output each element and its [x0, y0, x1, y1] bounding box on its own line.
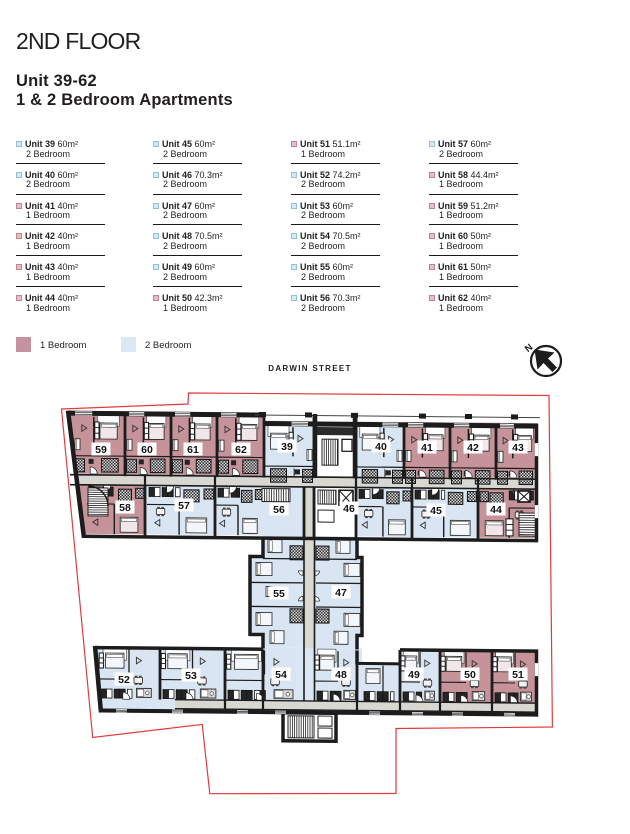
svg-text:54: 54: [275, 669, 287, 681]
svg-text:59: 59: [95, 444, 107, 456]
svg-text:51: 51: [512, 669, 524, 681]
svg-text:57: 57: [178, 500, 190, 512]
svg-text:60: 60: [141, 444, 153, 456]
svg-text:39: 39: [281, 441, 293, 453]
svg-text:49: 49: [408, 669, 420, 681]
svg-text:53: 53: [185, 670, 197, 682]
svg-text:56: 56: [273, 504, 285, 516]
svg-text:44: 44: [490, 504, 502, 516]
svg-text:58: 58: [119, 502, 131, 514]
svg-text:42: 42: [467, 442, 479, 454]
svg-text:43: 43: [512, 442, 524, 454]
svg-text:47: 47: [335, 587, 347, 599]
svg-text:50: 50: [464, 669, 476, 681]
svg-text:48: 48: [335, 669, 347, 681]
svg-text:62: 62: [235, 444, 247, 456]
svg-text:45: 45: [430, 505, 442, 517]
svg-text:41: 41: [421, 442, 433, 454]
svg-text:40: 40: [375, 441, 387, 453]
svg-text:46: 46: [343, 503, 355, 515]
svg-text:52: 52: [118, 674, 130, 686]
svg-text:55: 55: [273, 588, 285, 600]
svg-text:61: 61: [187, 444, 199, 456]
